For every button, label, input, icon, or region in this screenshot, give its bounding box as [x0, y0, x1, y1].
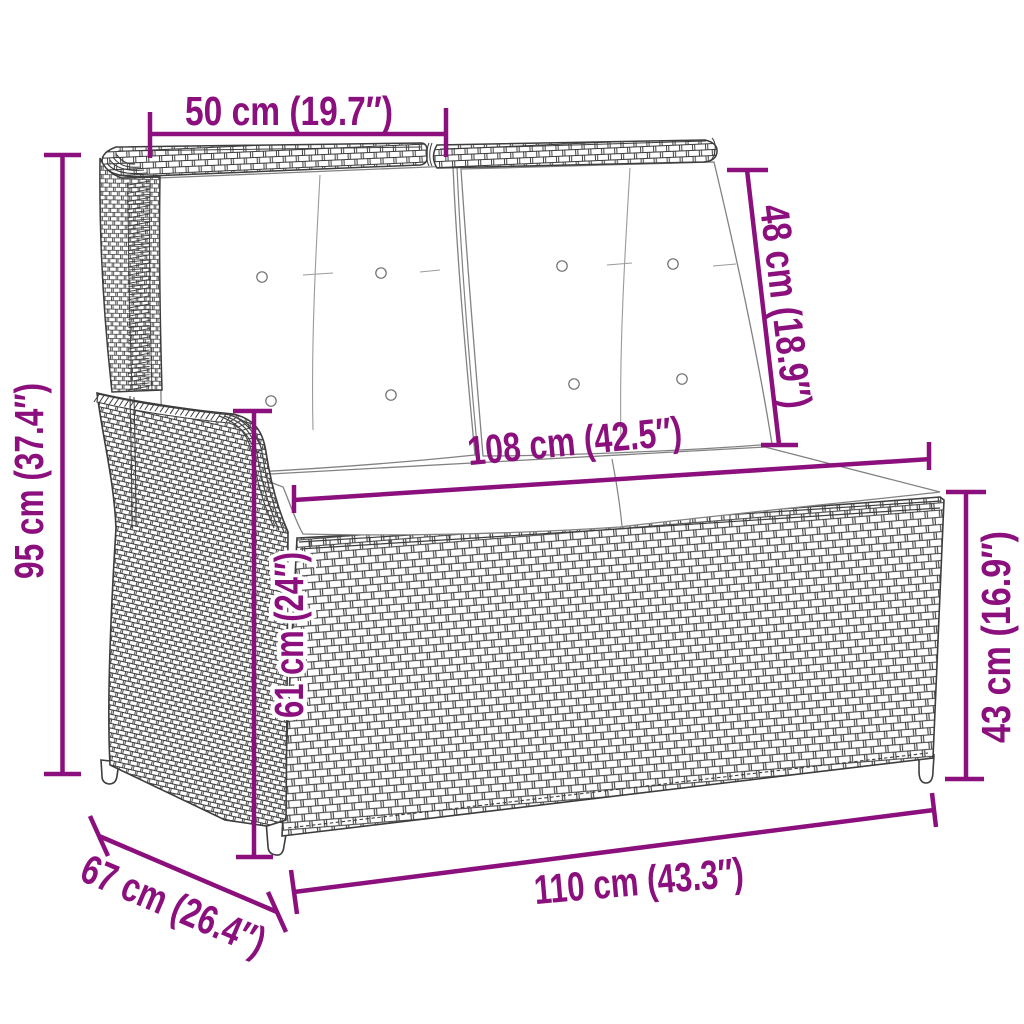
svg-text:95 cm (37.4″): 95 cm (37.4″) — [6, 383, 52, 579]
svg-text:50 cm (19.7″): 50 cm (19.7″) — [185, 88, 393, 134]
svg-text:61 cm (24″): 61 cm (24″) — [266, 552, 312, 718]
svg-text:43 cm (16.9″): 43 cm (16.9″) — [973, 531, 1019, 743]
